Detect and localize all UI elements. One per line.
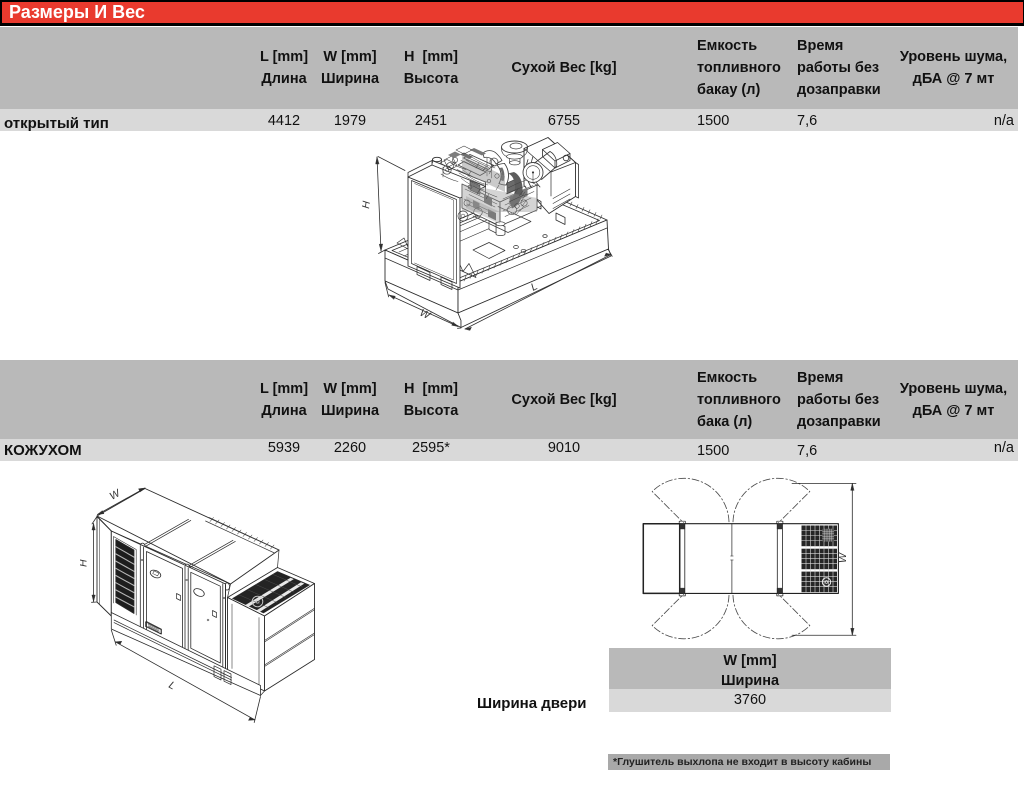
svg-text:W: W xyxy=(108,487,123,503)
svg-text:H: H xyxy=(80,559,90,567)
svg-text:H: H xyxy=(360,200,373,209)
svg-text:L: L xyxy=(167,679,178,692)
svg-text:W: W xyxy=(837,552,849,563)
